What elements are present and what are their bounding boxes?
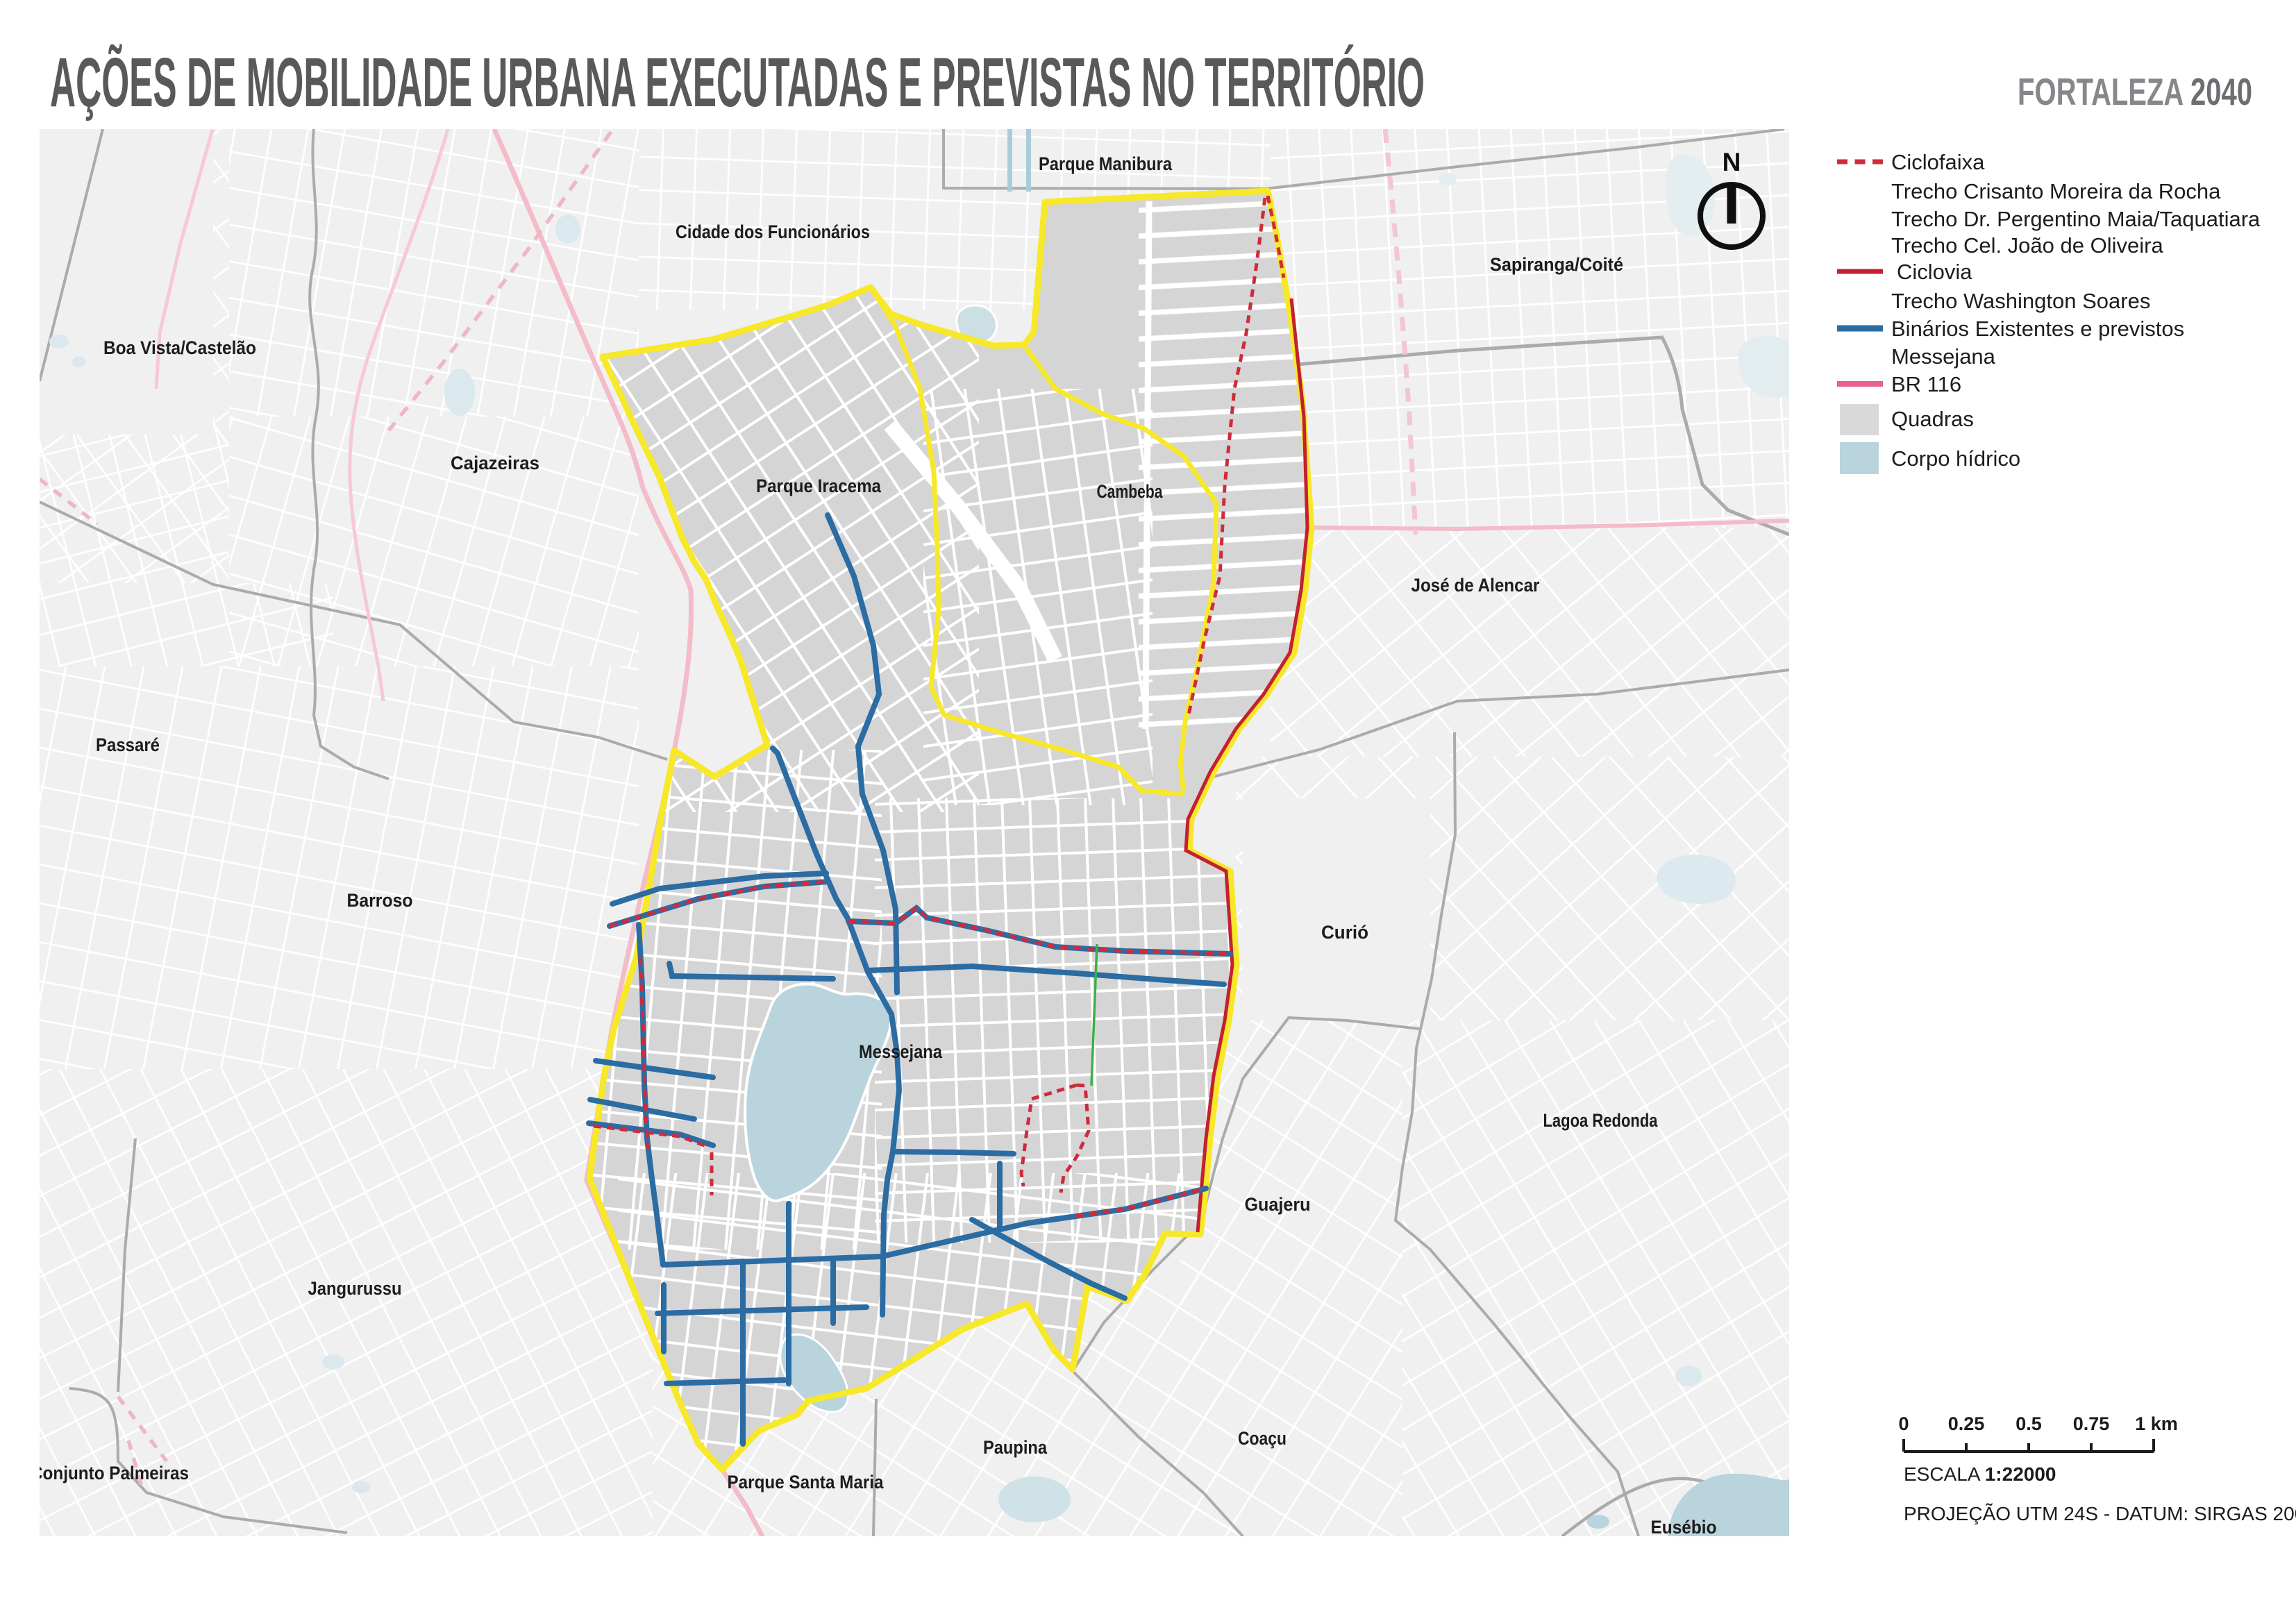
svg-text:BR 116: BR 116 xyxy=(1891,372,1961,396)
svg-text:PROJEÇÃO UTM 24S - DATUM: SIRG: PROJEÇÃO UTM 24S - DATUM: SIRGAS 2000 xyxy=(1904,1503,2296,1524)
svg-text:Messejana: Messejana xyxy=(1891,344,1996,369)
svg-text:0.5: 0.5 xyxy=(2016,1413,2042,1434)
svg-text:Parque Manibura: Parque Manibura xyxy=(1039,153,1173,174)
svg-text:Quadras: Quadras xyxy=(1891,407,1974,431)
svg-text:Cidade dos Funcionários: Cidade dos Funcionários xyxy=(676,221,870,242)
svg-text:0.25: 0.25 xyxy=(1948,1413,1985,1434)
svg-text:ESCALA 1:22000: ESCALA 1:22000 xyxy=(1904,1463,2056,1485)
svg-text:Corpo hídrico: Corpo hídrico xyxy=(1891,446,2020,471)
svg-text:Ciclofaixa: Ciclofaixa xyxy=(1891,150,1985,174)
svg-text:AÇÕES DE MOBILIDADE URBANA EXE: AÇÕES DE MOBILIDADE URBANA EXECUTADAS E … xyxy=(50,44,1425,121)
svg-text:Paupina: Paupina xyxy=(983,1437,1048,1458)
svg-text:N: N xyxy=(1723,148,1741,176)
svg-text:Passaré: Passaré xyxy=(96,734,160,755)
svg-text:0: 0 xyxy=(1898,1413,1909,1434)
svg-text:Ciclovia: Ciclovia xyxy=(1897,260,1972,284)
svg-text:Trecho Washington Soares: Trecho Washington Soares xyxy=(1891,289,2150,313)
svg-text:Curió: Curió xyxy=(1321,922,1368,943)
svg-text:Messejana: Messejana xyxy=(859,1041,943,1062)
svg-text:Parque Santa Maria: Parque Santa Maria xyxy=(728,1472,885,1492)
svg-text:Eusébio: Eusébio xyxy=(1651,1517,1717,1538)
svg-text:Binários Existentes e previsto: Binários Existentes e previstos xyxy=(1891,317,2184,341)
svg-text:Trecho Crisanto Moreira da Roc: Trecho Crisanto Moreira da Rocha xyxy=(1891,179,2221,203)
svg-text:Cambeba: Cambeba xyxy=(1097,481,1164,502)
svg-text:1 km: 1 km xyxy=(2135,1413,2178,1434)
svg-text:Coaçu: Coaçu xyxy=(1238,1428,1287,1449)
svg-text:Boa Vista/Castelão: Boa Vista/Castelão xyxy=(103,337,256,358)
svg-text:Sapiranga/Coité: Sapiranga/Coité xyxy=(1490,254,1623,275)
svg-text:Lagoa Redonda: Lagoa Redonda xyxy=(1543,1110,1659,1131)
svg-text:Parque Iracema: Parque Iracema xyxy=(756,476,882,496)
svg-text:Trecho Cel. João de Oliveira: Trecho Cel. João de Oliveira xyxy=(1891,233,2163,258)
svg-text:Guajeru: Guajeru xyxy=(1245,1194,1311,1215)
svg-text:José de Alencar: José de Alencar xyxy=(1411,575,1540,596)
svg-text:Cajazeiras: Cajazeiras xyxy=(451,453,539,473)
svg-text:Barroso: Barroso xyxy=(347,890,413,911)
svg-text:FORTALEZA 2040: FORTALEZA 2040 xyxy=(2018,70,2252,113)
svg-text:0.75: 0.75 xyxy=(2073,1413,2110,1434)
svg-text:Trecho Dr. Pergentino Maia/Taq: Trecho Dr. Pergentino Maia/Taquatiara xyxy=(1891,207,2261,231)
svg-text:Conjunto Palmeiras: Conjunto Palmeiras xyxy=(31,1463,189,1483)
svg-text:Jangurussu: Jangurussu xyxy=(308,1278,402,1299)
